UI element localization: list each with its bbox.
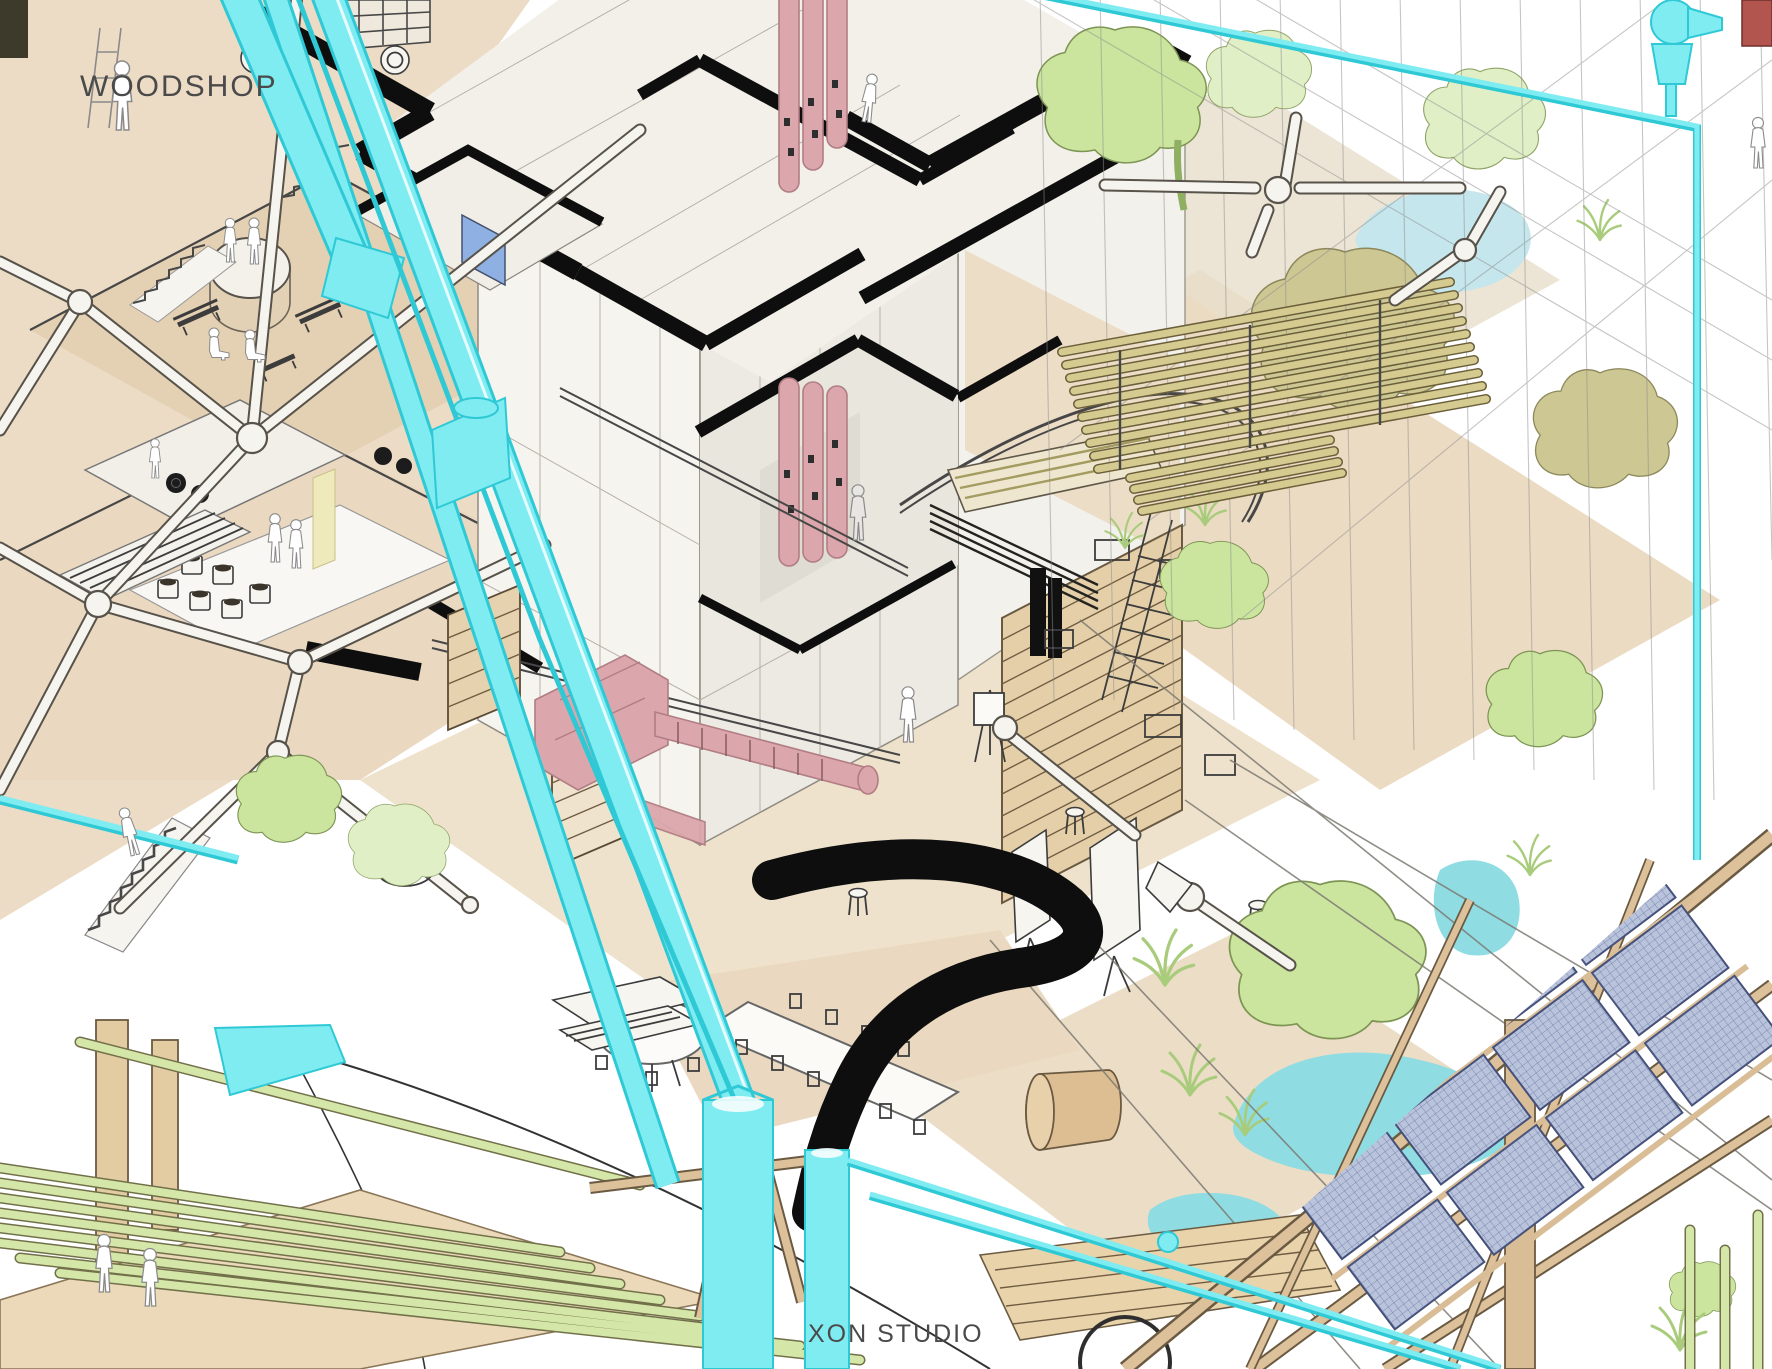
wood-drum (1026, 1070, 1121, 1150)
red-device (1742, 0, 1772, 46)
woodshop-label: WOODSHOP (80, 70, 278, 103)
illustration-canvas: WOODSHOP XON STUDIO (0, 0, 1772, 1369)
spiral-balcony (210, 238, 290, 332)
axonometric-illustration: WOODSHOP XON STUDIO (0, 0, 1772, 1369)
pipe-valve (1158, 1232, 1178, 1252)
studio-label: XON STUDIO (808, 1320, 984, 1348)
dark-corner-panel (0, 0, 28, 58)
